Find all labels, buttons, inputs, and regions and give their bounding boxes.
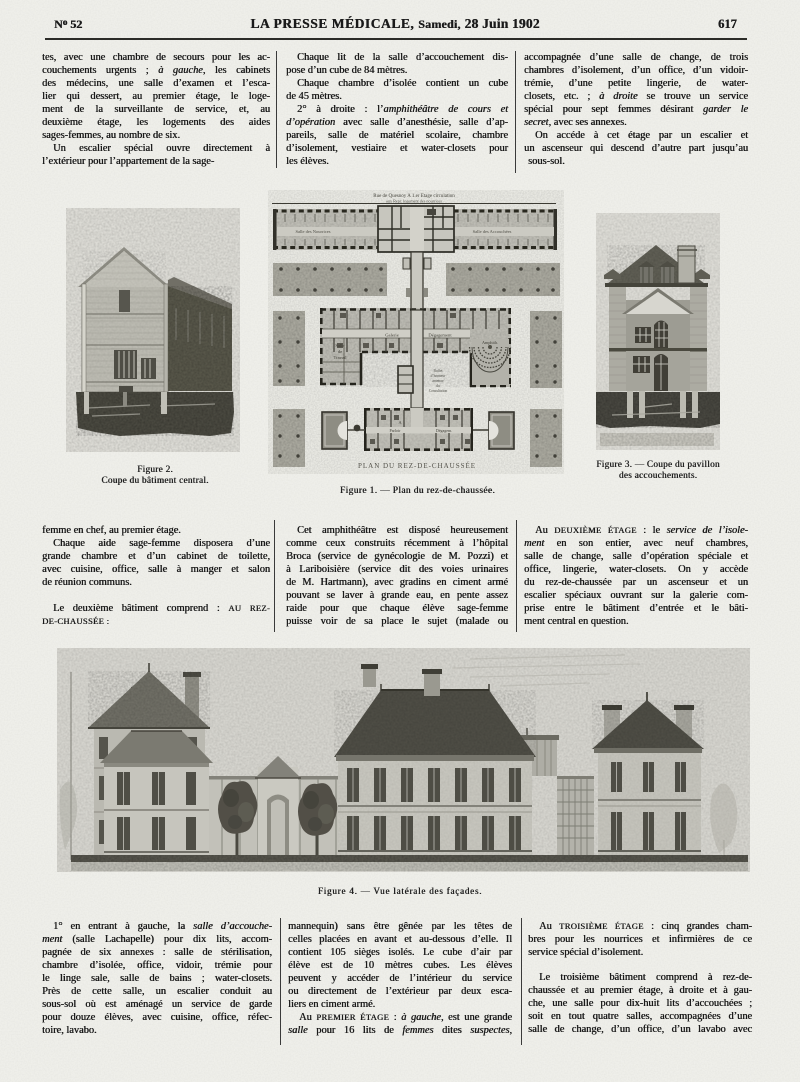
svg-text:Consultation: Consultation — [429, 389, 448, 393]
svg-text:Salle des Nourrices: Salle des Nourrices — [296, 229, 331, 234]
svg-text:Salle: Salle — [335, 343, 344, 348]
svg-text:Salle des Accouchées: Salle des Accouchées — [473, 229, 512, 234]
svg-text:du: du — [436, 384, 440, 388]
svg-text:Buffet: Buffet — [433, 369, 442, 373]
svg-text:Galerie: Galerie — [385, 333, 399, 338]
svg-text:Amphith.: Amphith. — [482, 340, 498, 345]
svg-text:Dégagem.: Dégagem. — [436, 428, 452, 433]
svg-text:d’honneur: d’honneur — [431, 374, 447, 378]
svg-text:de: de — [338, 349, 342, 354]
svg-text:Travail: Travail — [333, 355, 347, 360]
svg-text:PLAN DU REZ-DE-CHAUSSÉE: PLAN DU REZ-DE-CHAUSSÉE — [358, 460, 476, 470]
svg-text:Dégagement: Dégagement — [428, 333, 452, 338]
svg-text:Parloir: Parloir — [390, 428, 402, 433]
svg-text:antenne: antenne — [432, 379, 444, 383]
svg-text:aux Repr. logement des nourric: aux Repr. logement des nourrices — [386, 199, 442, 204]
